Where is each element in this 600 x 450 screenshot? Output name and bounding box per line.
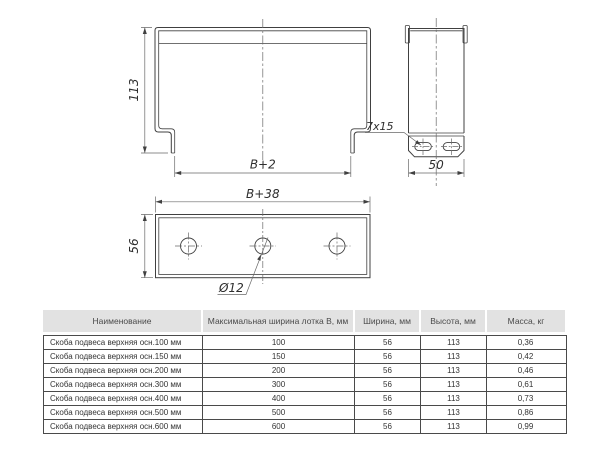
plan-hole-centerlines [175, 209, 351, 284]
arrow [458, 171, 465, 175]
plan-dim-depth [141, 215, 153, 278]
plan-width-label: B+38 [246, 187, 280, 201]
table-row: Скоба подвеса верхняя осн.600 мм 600 56 … [44, 420, 566, 433]
cell-mass: 0,61 [487, 378, 564, 391]
cell-name: Скоба подвеса верхняя осн.600 мм [44, 420, 203, 433]
cell-height: 113 [421, 420, 487, 433]
cell-width: 56 [355, 378, 421, 391]
cell-height: 113 [421, 406, 487, 419]
cell-mass: 0,46 [487, 364, 564, 377]
header-max-tray-width: Максимальная ширина лотка В, мм [203, 310, 355, 332]
table-row: Скоба подвеса верхняя осн.150 мм 150 56 … [44, 350, 566, 364]
cell-mass: 0,86 [487, 406, 564, 419]
header-mass: Масса, кг [487, 310, 565, 332]
cell-height: 113 [421, 364, 487, 377]
cell-width: 56 [355, 364, 421, 377]
technical-drawing: 113 B+2 7x15 [0, 0, 600, 306]
arrow [344, 171, 351, 175]
cell-name: Скоба подвеса верхняя осн.300 мм [44, 378, 203, 391]
table-row: Скоба подвеса верхняя осн.300 мм 300 56 … [44, 378, 566, 392]
cell-mass: 0,99 [487, 420, 564, 433]
cell-mass: 0,73 [487, 392, 564, 405]
slot-leader-line [365, 133, 421, 146]
cell-b: 600 [203, 420, 355, 433]
header-height: Высота, мм [421, 310, 487, 332]
plan-depth-label: 56 [127, 238, 141, 254]
cell-name: Скоба подвеса верхняя осн.500 мм [44, 406, 203, 419]
arrow [175, 171, 182, 175]
cell-width: 56 [355, 392, 421, 405]
cell-width: 56 [355, 406, 421, 419]
arrow [409, 171, 416, 175]
cell-name: Скоба подвеса верхняя осн.200 мм [44, 364, 203, 377]
arrow [364, 200, 371, 204]
cell-height: 113 [421, 392, 487, 405]
arrow [143, 28, 147, 35]
slot-size-label: 7x15 [366, 120, 394, 133]
spec-table-body: Скоба подвеса верхняя осн.100 мм 100 56 … [43, 335, 567, 434]
cell-height: 113 [421, 336, 487, 349]
arrow [143, 215, 147, 222]
drawing-sheet: 113 B+2 7x15 [0, 0, 600, 450]
table-row: Скоба подвеса верхняя осн.400 мм 400 56 … [44, 392, 566, 406]
header-width: Ширина, мм [355, 310, 421, 332]
front-height-label: 113 [127, 79, 141, 102]
cell-width: 56 [355, 350, 421, 363]
cell-b: 200 [203, 364, 355, 377]
cell-name: Скоба подвеса верхняя осн.400 мм [44, 392, 203, 405]
cell-b: 300 [203, 378, 355, 391]
arrow [156, 200, 163, 204]
cell-height: 113 [421, 350, 487, 363]
cell-name: Скоба подвеса верхняя осн.100 мм [44, 336, 203, 349]
cell-width: 56 [355, 336, 421, 349]
hole-diameter-label: Ø12 [218, 281, 244, 295]
spec-table-header: Наименование Максимальная ширина лотка В… [43, 310, 567, 332]
cell-b: 500 [203, 406, 355, 419]
arrow [143, 271, 147, 278]
cell-mass: 0,36 [487, 336, 564, 349]
table-row: Скоба подвеса верхняя осн.200 мм 200 56 … [44, 364, 566, 378]
arrow [143, 147, 147, 154]
cell-height: 113 [421, 378, 487, 391]
front-width-label: B+2 [250, 158, 276, 172]
header-name: Наименование [43, 310, 203, 332]
cell-b: 100 [203, 336, 355, 349]
spec-table: Наименование Максимальная ширина лотка В… [43, 310, 567, 434]
table-row: Скоба подвеса верхняя осн.100 мм 100 56 … [44, 336, 566, 350]
cell-mass: 0,42 [487, 350, 564, 363]
side-width-label: 50 [429, 158, 445, 172]
table-row: Скоба подвеса верхняя осн.500 мм 500 56 … [44, 406, 566, 420]
cell-width: 56 [355, 420, 421, 433]
cell-b: 400 [203, 392, 355, 405]
arrow [257, 254, 263, 261]
cell-b: 150 [203, 350, 355, 363]
cell-name: Скоба подвеса верхняя осн.150 мм [44, 350, 203, 363]
